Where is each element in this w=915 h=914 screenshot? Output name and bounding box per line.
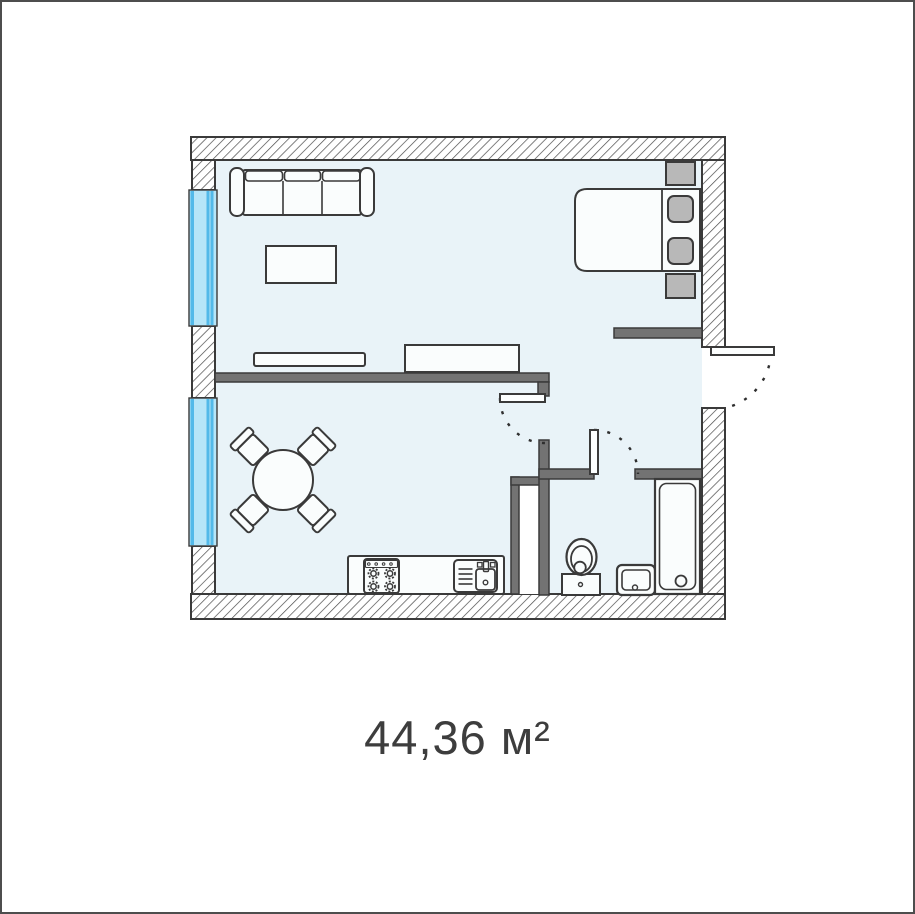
wall-bathroom-top-left: [539, 469, 594, 479]
window-icon-top: [189, 190, 217, 326]
stove-icon: [364, 559, 399, 593]
entrance-door-swing-arc: [725, 352, 771, 408]
kitchen-counter-icon: [348, 556, 504, 594]
wall-bedroom-hall: [614, 328, 702, 338]
window-icon-bottom: [189, 398, 217, 546]
wall-left-middle: [192, 326, 215, 398]
entrance-door-leaf: [711, 347, 774, 355]
nightstand-icon: [666, 274, 695, 298]
nightstand-icon: [666, 162, 695, 185]
wall-top: [191, 137, 725, 160]
bathroom-door-leaf: [590, 430, 598, 474]
coffee-table-icon: [266, 246, 336, 283]
floor-plan: [2, 2, 915, 914]
canvas-frame: 44,36 м²: [0, 0, 915, 914]
wall-right-upper: [702, 160, 725, 347]
wall-bathroom-top-right: [635, 469, 702, 479]
wall-bottom: [191, 594, 725, 619]
sofa-icon: [230, 168, 374, 216]
tv-stand-icon: [254, 353, 365, 366]
pillow-icon: [668, 238, 693, 264]
bathtub-icon: [655, 479, 700, 594]
wall-living-kitchen: [215, 373, 549, 382]
kitchen-sink-icon: [454, 560, 497, 592]
wall-right-lower: [702, 408, 725, 594]
wall-left-lower: [192, 546, 215, 595]
wall-left-upper: [192, 160, 215, 190]
dresser-icon: [405, 345, 519, 372]
dining-table-icon: [253, 450, 313, 510]
double-bed-icon: [575, 189, 700, 271]
wall-bathroom-left: [539, 440, 549, 595]
pillow-icon: [668, 196, 693, 222]
area-label: 44,36 м²: [2, 710, 913, 765]
wash-basin-icon: [617, 565, 655, 595]
kitchen-door-leaf: [500, 394, 545, 402]
